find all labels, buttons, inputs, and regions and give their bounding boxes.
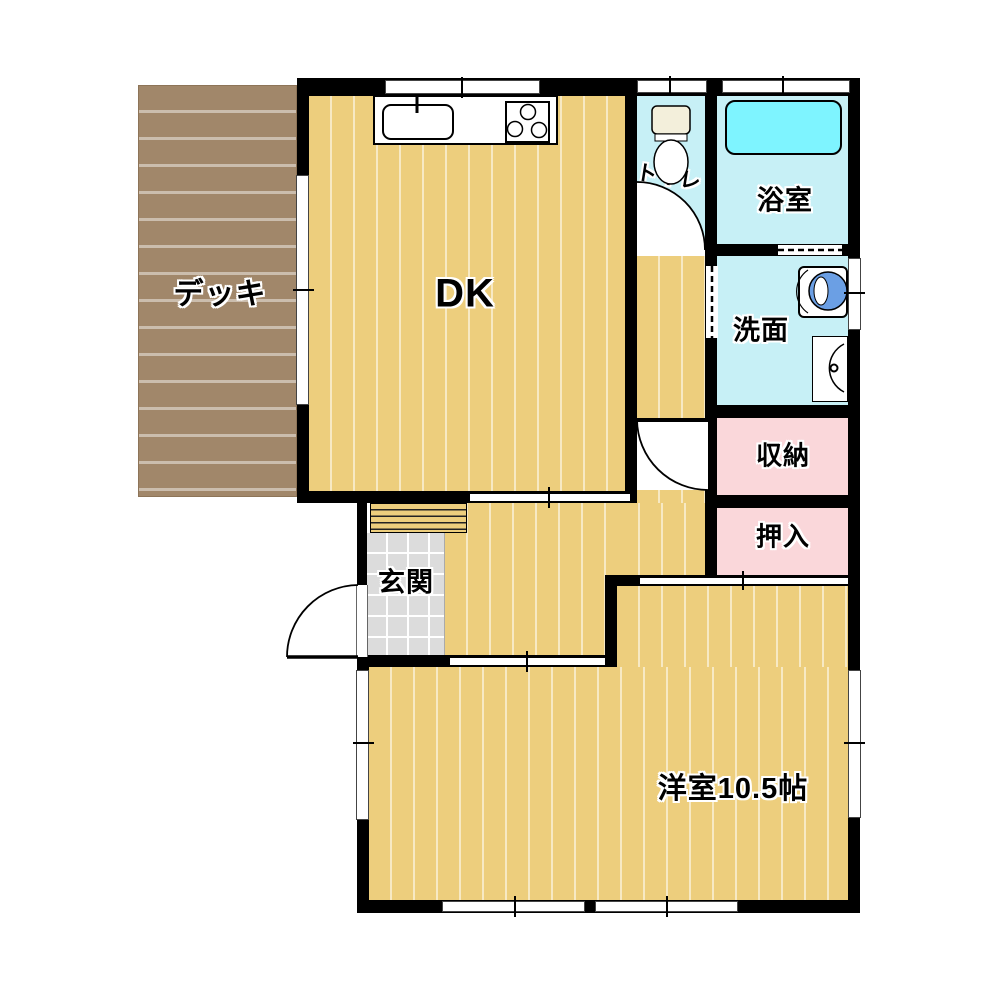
window-kitchen (385, 80, 540, 94)
window-toilet (637, 80, 707, 93)
entrance-door-gap (356, 585, 368, 657)
hall-floor-lower (637, 490, 705, 503)
wall-toilet-bath (705, 96, 717, 244)
washroom-door-gap (706, 266, 718, 338)
bath-door-gap (778, 245, 842, 255)
bathtub-icon (725, 100, 842, 155)
wall-dk-left-upper (297, 96, 309, 175)
dk-label: DK (435, 272, 495, 317)
sliding-door-dk-hall (470, 492, 630, 503)
wall-right-hall (848, 586, 860, 670)
closet-label: 押入 (756, 517, 810, 554)
window-western-east (848, 670, 861, 818)
entrance-label: 玄関 (378, 561, 434, 600)
wall-hall-connector (605, 575, 617, 667)
floor-plan: デッキ DK トイレ 浴室 洗面 収納 押入 玄関 洋室10.5帖 (0, 0, 1000, 1000)
hall-floor (445, 503, 617, 655)
hall-floor-east (617, 503, 705, 575)
wall-entrance-left (357, 491, 367, 585)
corridor-door-swing (637, 420, 708, 490)
stove-icon (505, 101, 550, 143)
window-south-right (595, 901, 738, 912)
washroom-label: 洗面 (733, 309, 789, 348)
wall-washroom-bottom (705, 405, 860, 418)
entrance-door-arc (287, 585, 358, 657)
wall-right-middle (848, 330, 860, 575)
corridor-floor (637, 256, 705, 424)
sliding-door-hall-western (450, 656, 605, 667)
corridor-door-arc (637, 420, 708, 490)
wall-dk-right (625, 96, 637, 491)
western-room-floor-upper (617, 586, 848, 667)
window-south-left (442, 901, 585, 912)
window-dk-west (296, 175, 309, 405)
sliding-door-closet (640, 576, 848, 586)
window-western-west (356, 670, 369, 820)
wall-storage-closet (705, 495, 860, 508)
wall-right-lower (848, 818, 860, 913)
kitchen-sink-icon (382, 104, 454, 140)
wall-right-upper (848, 96, 860, 258)
toilet-door-gap (637, 245, 705, 256)
washbasin-icon (812, 336, 848, 402)
washing-machine-icon (798, 266, 848, 318)
wall-dk-left-lower (297, 405, 309, 503)
storage-label: 収納 (756, 436, 810, 473)
deck-label: デッキ (174, 269, 267, 313)
bathroom-label: 浴室 (757, 179, 813, 218)
window-washroom-east (848, 258, 861, 330)
entrance-step (370, 503, 467, 533)
window-bathroom (722, 80, 850, 93)
western-room-label: 洋室10.5帖 (658, 765, 808, 807)
